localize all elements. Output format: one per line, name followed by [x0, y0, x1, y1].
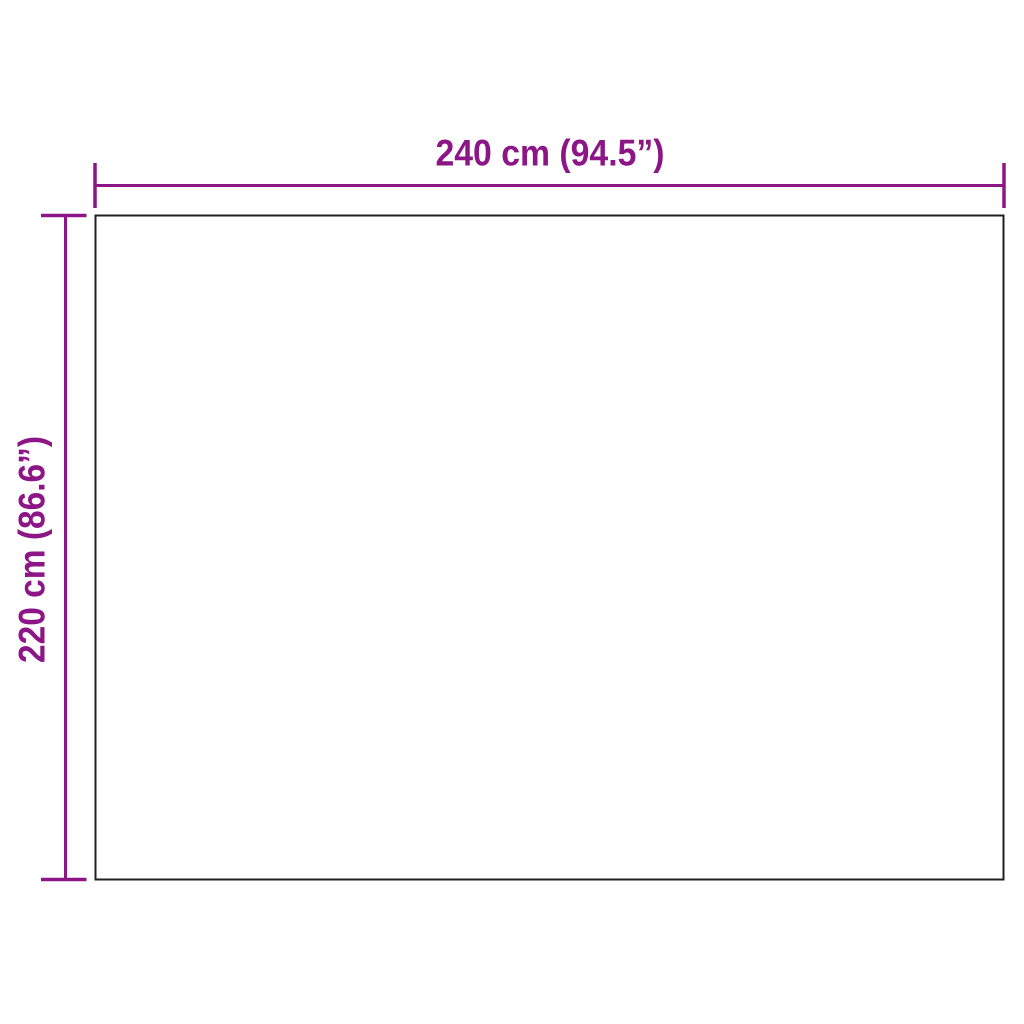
svg-text:240 cm (94.5”): 240 cm (94.5”) [436, 133, 665, 174]
svg-text:220 cm (86.6”): 220 cm (86.6”) [12, 436, 53, 663]
